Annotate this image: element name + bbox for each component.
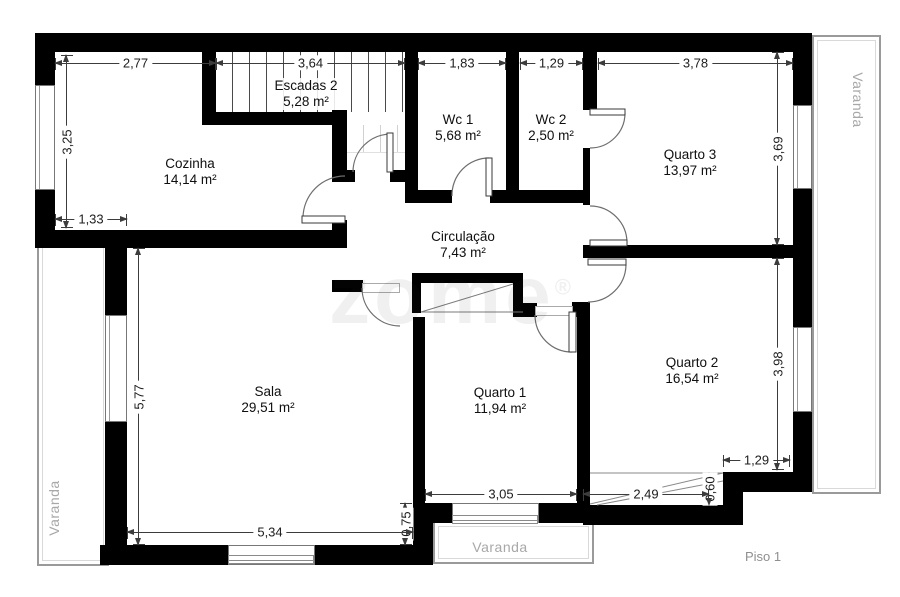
room-label-quarto2: Quarto 2 16,54 m²: [665, 355, 718, 387]
dimension-bottom-2: 3,05: [425, 494, 577, 495]
room-area: 7,43 m²: [431, 245, 495, 261]
room-label-escadas: Escadas 2 5,28 m²: [270, 78, 341, 110]
room-label-wc2: Wc 2 2,50 m²: [528, 112, 574, 144]
balcony-label-left: Varanda: [54, 508, 109, 524]
dimension-bottom-1: 5,34: [127, 532, 413, 533]
floor-plan: Cozinha 14,14 m² Escadas 2 5,28 m² Wc 1 …: [0, 0, 900, 597]
room-area: 14,14 m²: [163, 172, 216, 188]
dimension-value: 5,77: [132, 380, 147, 413]
dimension-bottom-4: 1,29: [723, 460, 790, 461]
dimension-value: 1,33: [74, 211, 107, 226]
door-swing-overlay: [0, 0, 900, 597]
room-area: 13,97 m²: [663, 163, 716, 179]
dimension-value: 2,77: [119, 55, 152, 70]
dimension-value: 0,60: [703, 472, 718, 505]
balcony-label-right: Varanda: [858, 100, 900, 116]
dimension-top-2: 3,64: [216, 63, 405, 64]
room-name: Wc 1: [435, 112, 481, 128]
dimension-left-2: 5,77: [138, 248, 139, 545]
room-label-sala: Sala 29,51 m²: [241, 384, 294, 416]
room-label-circulacao: Circulação 7,43 m²: [431, 229, 495, 261]
dimension-value: 1,29: [535, 55, 568, 70]
room-label-cozinha: Cozinha 14,14 m²: [163, 156, 216, 188]
dimension-left-1: 3,25: [66, 55, 67, 228]
room-name: Circulação: [431, 229, 495, 245]
room-name: Sala: [241, 384, 294, 400]
dimension-inner-133: 1,33: [55, 219, 127, 220]
dimension-right-1: 3,69: [777, 52, 778, 245]
room-label-quarto1: Quarto 1 11,94 m²: [474, 385, 527, 417]
room-name: Quarto 2: [665, 355, 718, 371]
dimension-value: 1,29: [740, 452, 773, 467]
room-area: 2,50 m²: [528, 128, 574, 144]
room-area: 5,68 m²: [435, 128, 481, 144]
room-area: 16,54 m²: [665, 371, 718, 387]
room-label-wc1: Wc 1 5,68 m²: [435, 112, 481, 144]
room-area: 11,94 m²: [474, 401, 527, 417]
dimension-value: 1,83: [445, 55, 478, 70]
wardrobe-diagonal: [421, 284, 523, 312]
dimension-value: 3,69: [771, 132, 786, 165]
room-name: Cozinha: [163, 156, 216, 172]
dimension-right-2: 3,98: [777, 258, 778, 470]
room-label-quarto3: Quarto 3 13,97 m²: [663, 147, 716, 179]
dimension-value: 3,78: [679, 55, 712, 70]
dimension-value: 2,49: [629, 486, 662, 501]
dimension-top-4: 1,29: [520, 63, 583, 64]
dimension-value: 3,64: [294, 55, 327, 70]
room-name: Escadas 2: [274, 78, 337, 94]
room-name: Quarto 1: [474, 385, 527, 401]
dimension-inner-060: 0,60: [709, 473, 710, 505]
balcony-label-bottom: Varanda: [500, 547, 555, 563]
dimension-inner-075: 0,75: [405, 503, 406, 545]
dimension-bottom-3: 2,49: [583, 494, 709, 495]
dimension-top-3: 1,83: [418, 63, 506, 64]
dimension-top-5: 3,78: [598, 63, 793, 64]
dimension-value: 3,98: [771, 347, 786, 380]
floor-label: Piso 1: [745, 549, 781, 564]
room-name: Quarto 3: [663, 147, 716, 163]
dimension-value: 3,05: [484, 486, 517, 501]
room-area: 29,51 m²: [241, 400, 294, 416]
room-area: 5,28 m²: [274, 94, 337, 110]
room-name: Wc 2: [528, 112, 574, 128]
dimension-top-1: 2,77: [55, 63, 216, 64]
dimension-value: 5,34: [253, 524, 286, 539]
dimension-value: 3,25: [60, 125, 75, 158]
